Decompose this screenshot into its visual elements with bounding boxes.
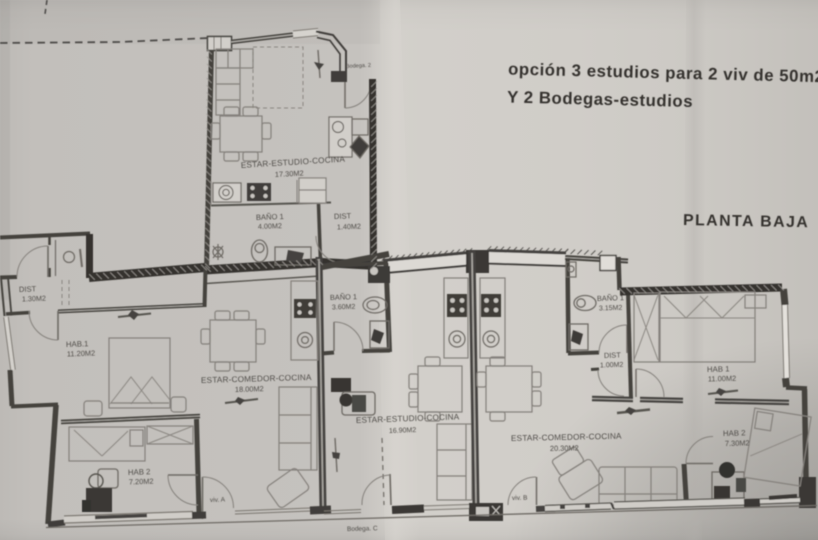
svg-text:Bodega. 2: Bodega. 2 <box>346 63 371 70</box>
svg-text:4.00M2: 4.00M2 <box>258 221 282 231</box>
svg-text:HAB 2: HAB 2 <box>723 428 746 438</box>
svg-text:ESTAR-ESTUDIO-COCINA: ESTAR-ESTUDIO-COCINA <box>241 155 346 170</box>
svg-text:11.20M2: 11.20M2 <box>67 349 96 359</box>
svg-text:DIST: DIST <box>604 350 622 360</box>
svg-text:7.20M2: 7.20M2 <box>129 477 154 487</box>
svg-text:HAB.1: HAB.1 <box>66 339 89 349</box>
svg-text:11.00M2: 11.00M2 <box>708 374 736 384</box>
svg-text:DIST: DIST <box>19 284 37 294</box>
svg-text:1.40M2: 1.40M2 <box>337 222 361 232</box>
svg-text:Bodega. C: Bodega. C <box>347 525 378 533</box>
svg-text:ESTAR-ESTUDIO-COCINA: ESTAR-ESTUDIO-COCINA <box>356 412 460 425</box>
svg-text:Y 2 Bodegas-estudios: Y 2 Bodegas-estudios <box>507 88 693 112</box>
svg-text:viv. B: viv. B <box>512 495 528 502</box>
svg-text:1.00M2: 1.00M2 <box>600 362 624 370</box>
svg-text:18.00M2: 18.00M2 <box>235 384 264 394</box>
svg-text:opción 3 estudios para 2 viv d: opción 3 estudios para 2 viv de 50m2 <box>508 60 818 87</box>
svg-text:20.30M2: 20.30M2 <box>550 443 579 453</box>
svg-text:HAB 1: HAB 1 <box>707 364 730 374</box>
svg-text:3.15M2: 3.15M2 <box>599 305 623 313</box>
svg-text:7.30M2: 7.30M2 <box>725 438 750 448</box>
svg-text:PLANTA BAJA: PLANTA BAJA <box>683 212 809 231</box>
svg-text:ESTAR-COMEDOR-COCINA: ESTAR-COMEDOR-COCINA <box>201 373 312 385</box>
svg-text:viv. A: viv. A <box>210 496 226 504</box>
svg-text:BAÑO 1: BAÑO 1 <box>597 293 624 303</box>
svg-text:3.60M2: 3.60M2 <box>332 304 356 312</box>
svg-text:1.30M2: 1.30M2 <box>22 294 46 304</box>
svg-text:ESTAR-COMEDOR-COCINA: ESTAR-COMEDOR-COCINA <box>511 432 622 443</box>
svg-text:HAB 2: HAB 2 <box>128 467 151 477</box>
svg-text:16.90M2: 16.90M2 <box>389 427 417 435</box>
svg-text:17.30M2: 17.30M2 <box>275 169 304 179</box>
svg-text:BAÑO 1: BAÑO 1 <box>330 292 357 302</box>
svg-text:DIST: DIST <box>334 211 352 221</box>
